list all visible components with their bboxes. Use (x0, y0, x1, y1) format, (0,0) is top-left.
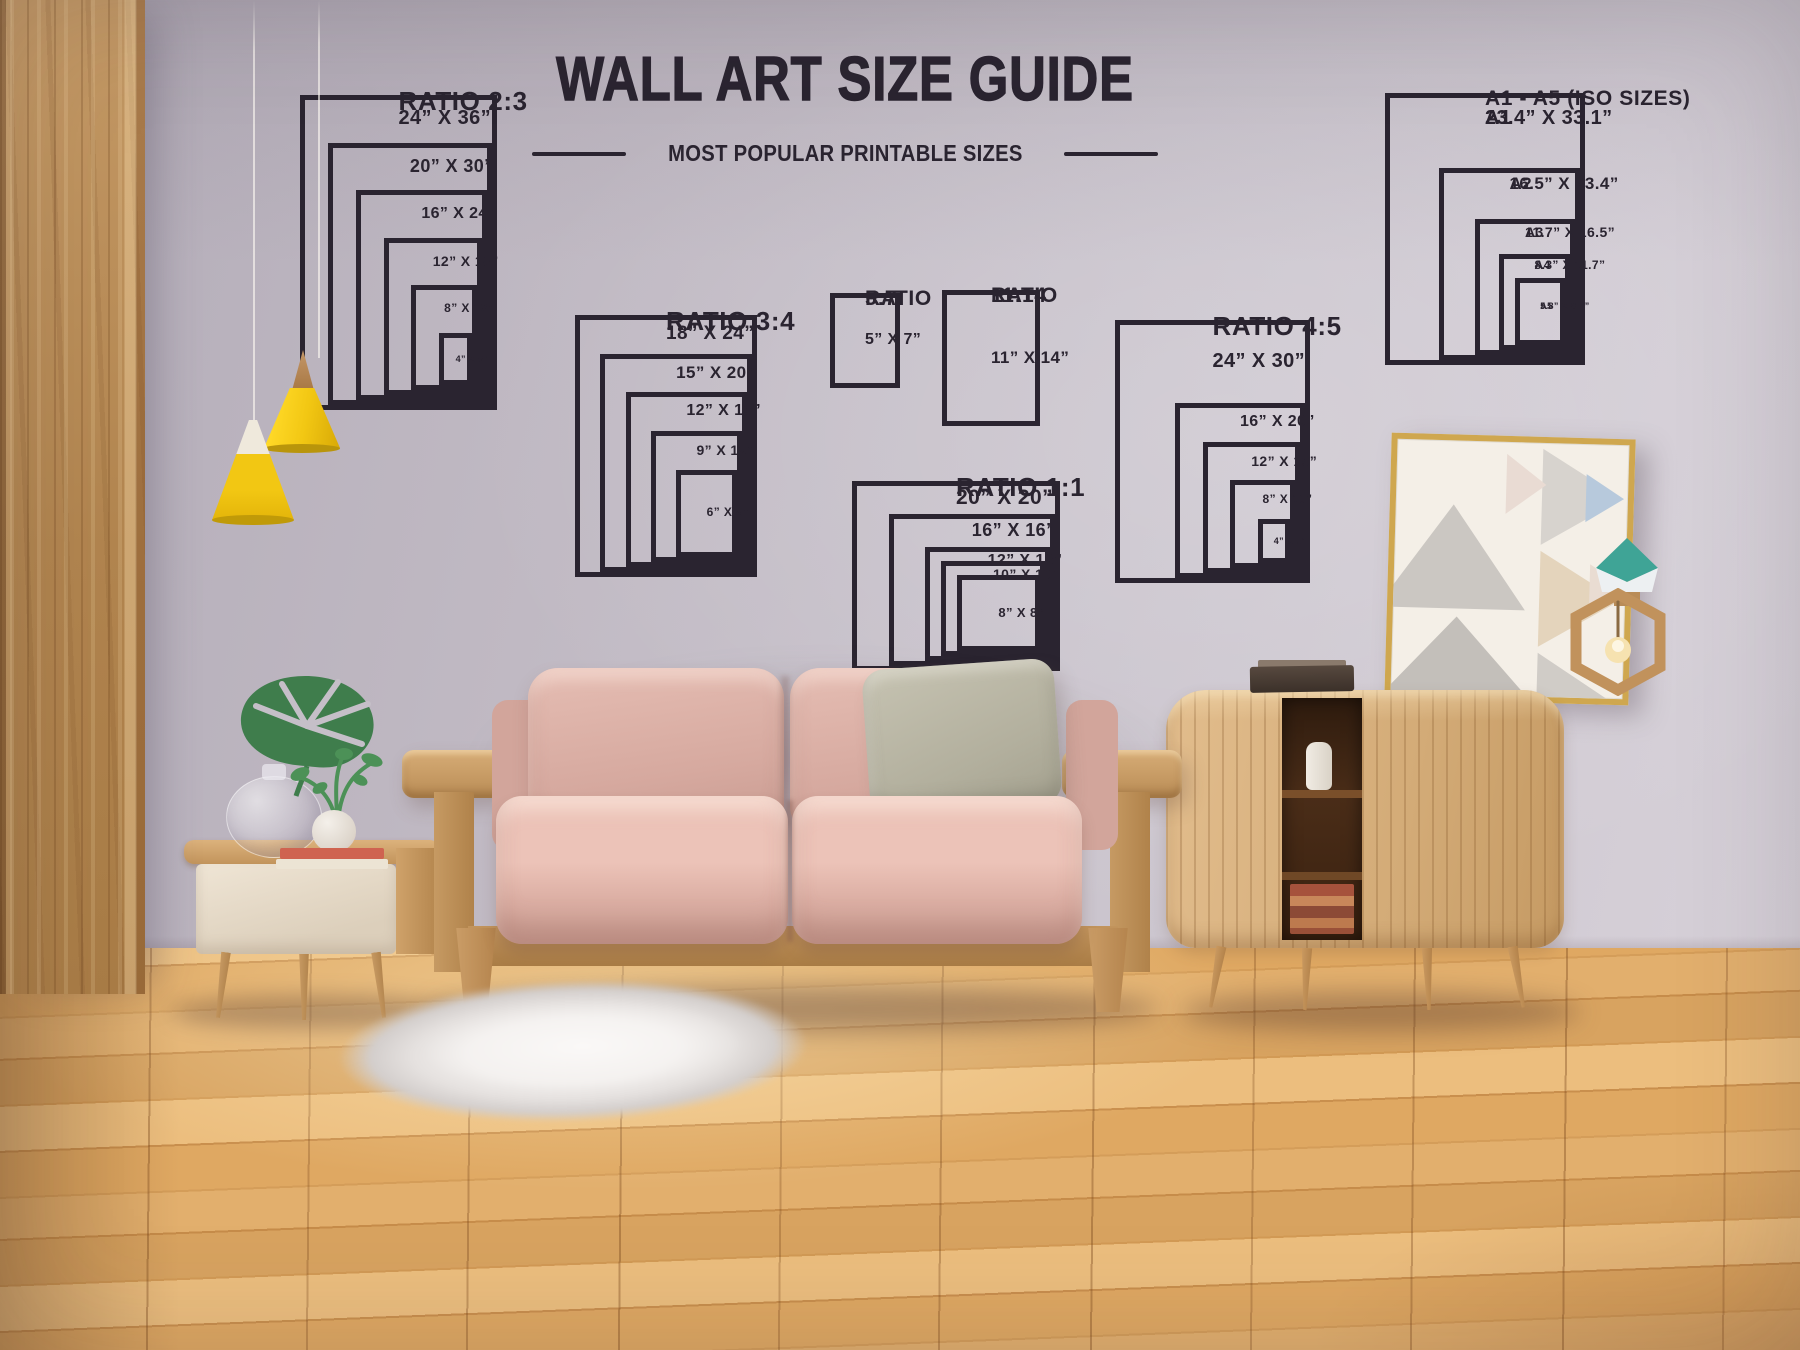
diagram-ratio-3-4: RATIO 3:418” X 24”15” X 20”12” X 16”9” X… (575, 315, 757, 577)
round-white-pot (312, 810, 356, 852)
cushion-seam (787, 800, 793, 942)
sofa-seat-cushion-left (496, 796, 788, 944)
lamp-cord (318, 0, 320, 358)
stacked-book (276, 859, 388, 869)
hexagon-wood-lamp (1570, 588, 1666, 696)
cabinet-top-book (1250, 665, 1354, 693)
shelf-board (1282, 790, 1362, 798)
subtitle-row: MOST POPULAR PRINTABLE SIZES (495, 140, 1195, 167)
sofa-seat-cushion-right (792, 796, 1082, 944)
diagram-ratio-5-7: RATIO5:75” X 7” (830, 293, 900, 388)
diagram-ratio-2-3: RATIO 2:324” X 36”20” X 30”16” X 24”12” … (300, 95, 497, 410)
shelf-books (1290, 884, 1354, 934)
pendant-lamp-rim (212, 515, 294, 525)
pendant-lamp-rim (264, 444, 340, 453)
wood-wall-panel (0, 0, 145, 994)
stacked-book (280, 848, 384, 859)
page-subtitle: MOST POPULAR PRINTABLE SIZES (668, 140, 1022, 167)
throw-pillow (861, 657, 1063, 816)
shelf-board (1282, 872, 1362, 880)
subtitle-rule-left (532, 152, 626, 156)
size-box (1515, 278, 1565, 345)
side-table-drawer (196, 864, 396, 954)
living-room-scene: WALL ART SIZE GUIDE MOST POPULAR PRINTAB… (0, 0, 1800, 1350)
small-white-vase (1306, 742, 1332, 790)
diagram-ratio-11-14: RATIO11:1411” X 14” (942, 290, 1040, 426)
subtitle-rule-right (1064, 152, 1158, 156)
diagram-ratio-1-1: RATIO 1:120” X 20”16” X 16”12” X 12”10” … (852, 481, 1060, 671)
slatted-cabinet (1166, 690, 1564, 948)
diagram-ratio-4-5: RATIO 4:524” X 30”16” X 20”12” X 15”8” X… (1115, 320, 1310, 583)
diagram-iso-a1-a5: A1 - A5 (ISO SIZES)A123.4” X 33.1”A216.5… (1385, 93, 1585, 365)
page-title: WALL ART SIZE GUIDE (538, 44, 1153, 115)
lamp-cord (253, 0, 255, 426)
